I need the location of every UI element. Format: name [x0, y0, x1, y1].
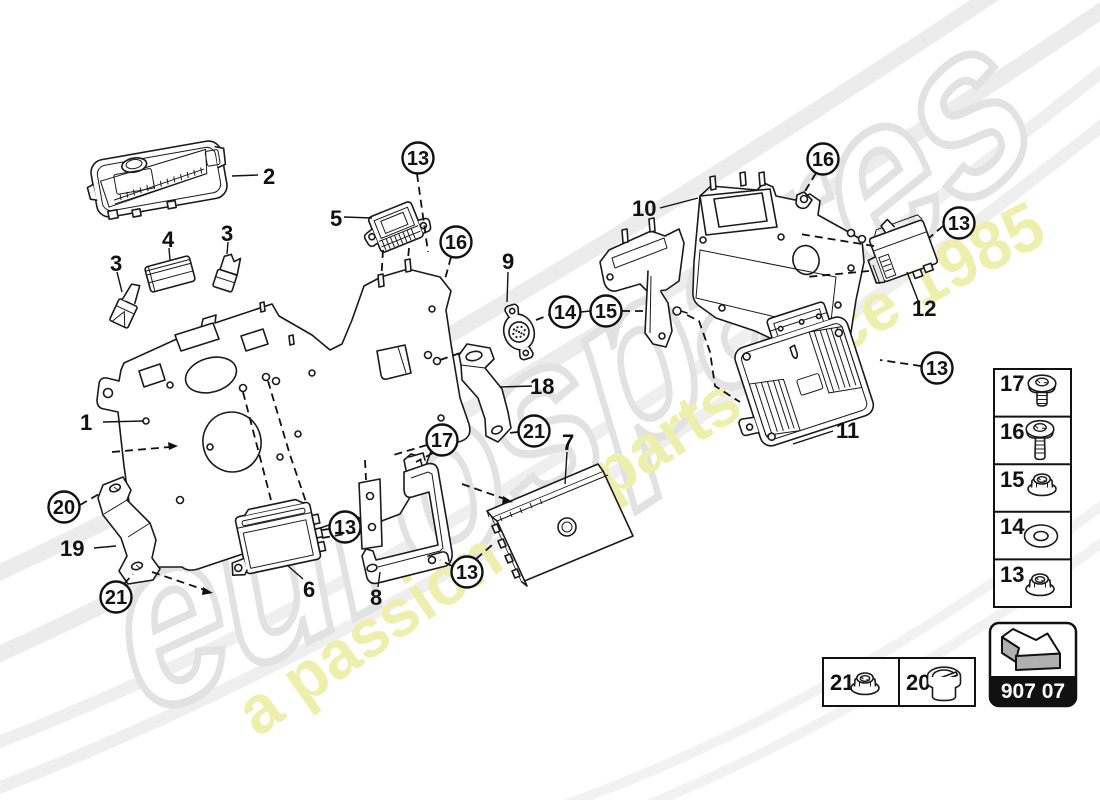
svg-text:7: 7 — [562, 430, 574, 455]
svg-text:17: 17 — [1000, 371, 1024, 396]
svg-text:3: 3 — [221, 221, 233, 246]
svg-text:15: 15 — [595, 301, 617, 323]
svg-text:17: 17 — [431, 430, 453, 452]
svg-text:16: 16 — [445, 232, 467, 254]
svg-text:16: 16 — [1000, 419, 1024, 444]
svg-text:13: 13 — [1000, 562, 1024, 587]
svg-text:1: 1 — [80, 410, 92, 435]
svg-text:13: 13 — [407, 148, 429, 170]
svg-text:11: 11 — [836, 418, 859, 443]
svg-text:21: 21 — [830, 670, 854, 695]
svg-text:9: 9 — [502, 249, 514, 274]
svg-text:18: 18 — [530, 374, 554, 399]
svg-text:3: 3 — [110, 251, 122, 276]
svg-text:12: 12 — [912, 296, 936, 321]
svg-text:13: 13 — [948, 213, 970, 235]
svg-text:8: 8 — [370, 585, 382, 610]
svg-text:907 07: 907 07 — [1001, 680, 1065, 703]
svg-text:10: 10 — [632, 196, 656, 221]
svg-text:20: 20 — [53, 497, 75, 519]
svg-text:6: 6 — [303, 577, 315, 602]
svg-text:13: 13 — [926, 358, 948, 380]
svg-text:15: 15 — [1000, 467, 1024, 492]
svg-text:21: 21 — [523, 421, 545, 443]
svg-text:2: 2 — [263, 164, 275, 189]
svg-text:4: 4 — [162, 227, 175, 252]
svg-text:5: 5 — [330, 206, 342, 231]
svg-text:19: 19 — [60, 536, 84, 561]
svg-text:14: 14 — [1000, 514, 1025, 539]
svg-text:13: 13 — [456, 562, 478, 584]
svg-text:21: 21 — [105, 587, 127, 609]
svg-text:14: 14 — [554, 302, 577, 324]
svg-text:16: 16 — [812, 149, 834, 171]
